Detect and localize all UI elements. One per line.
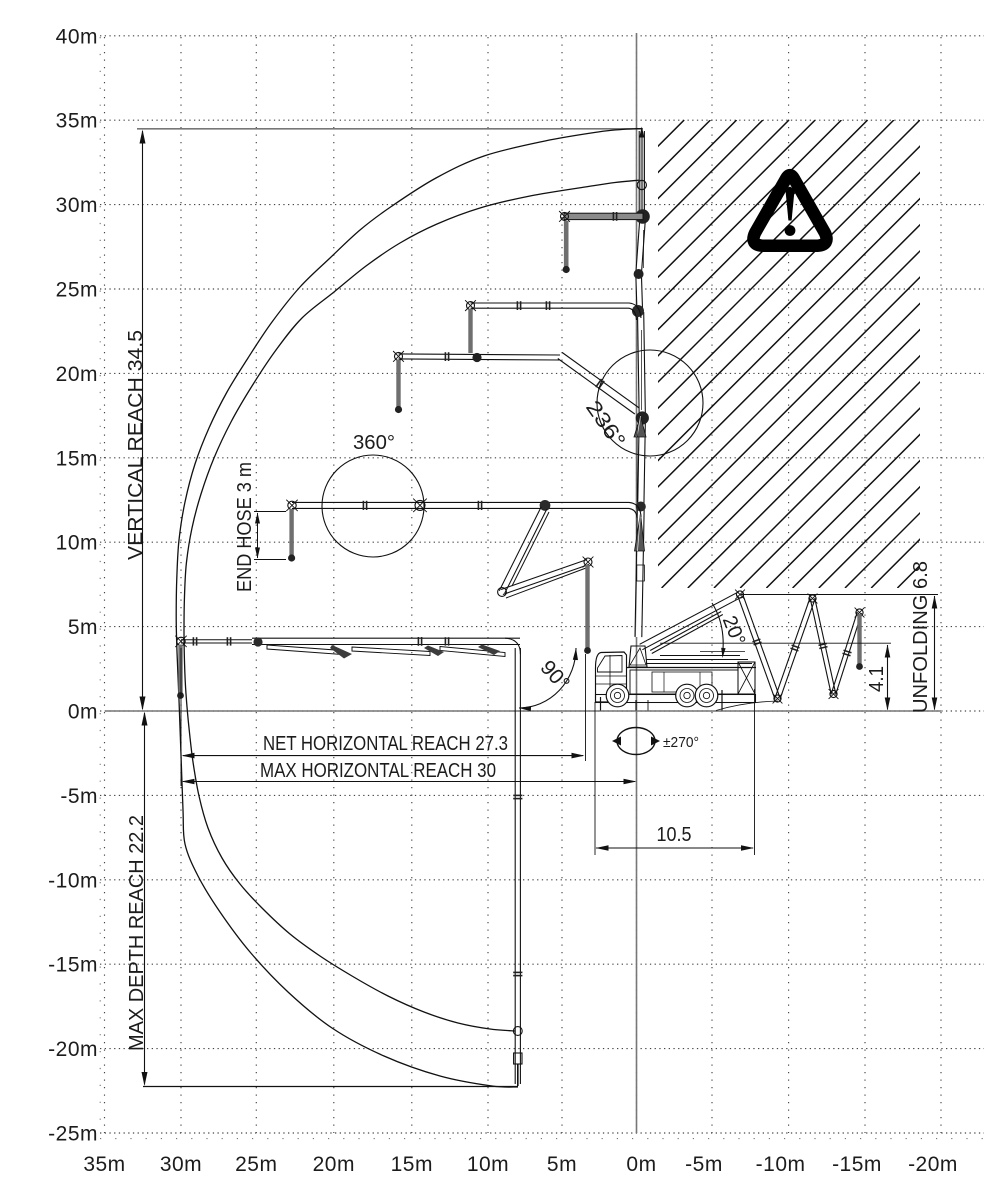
- svg-text:25m: 25m: [235, 1153, 277, 1176]
- svg-text:20m: 20m: [56, 363, 98, 386]
- svg-text:0m: 0m: [68, 701, 98, 724]
- svg-text:4.1: 4.1: [866, 666, 888, 692]
- svg-text:0m: 0m: [626, 1153, 656, 1176]
- svg-text:35m: 35m: [83, 1153, 125, 1176]
- svg-text:VERTICAL REACH 34.5: VERTICAL REACH 34.5: [125, 330, 147, 560]
- svg-text:UNFOLDING 6.8: UNFOLDING 6.8: [910, 561, 932, 713]
- svg-text:30m: 30m: [56, 194, 98, 217]
- svg-text:5m: 5m: [547, 1153, 577, 1176]
- svg-text:10.5: 10.5: [657, 824, 692, 846]
- svg-text:-15m: -15m: [48, 954, 98, 977]
- svg-text:35m: 35m: [56, 110, 98, 133]
- svg-text:±270°: ±270°: [663, 734, 699, 751]
- svg-text:-5m: -5m: [685, 1153, 723, 1176]
- svg-text:-20m: -20m: [908, 1153, 958, 1176]
- svg-text:-15m: -15m: [832, 1153, 882, 1176]
- svg-text:360°: 360°: [353, 432, 395, 454]
- svg-text:MAX DEPTH REACH 22.2: MAX DEPTH REACH 22.2: [126, 815, 148, 1051]
- svg-text:NET HORIZONTAL REACH 27.3: NET HORIZONTAL REACH 27.3: [263, 733, 508, 755]
- svg-text:10m: 10m: [467, 1153, 509, 1176]
- svg-text:5m: 5m: [68, 616, 98, 639]
- svg-text:MAX HORIZONTAL REACH 30: MAX HORIZONTAL REACH 30: [260, 760, 496, 782]
- svg-text:10m: 10m: [56, 532, 98, 555]
- svg-text:40m: 40m: [56, 25, 98, 48]
- svg-text:-10m: -10m: [48, 869, 98, 892]
- svg-text:END HOSE 3 m: END HOSE 3 m: [234, 462, 256, 592]
- svg-text:15m: 15m: [391, 1153, 433, 1176]
- svg-text:-25m: -25m: [48, 1123, 98, 1146]
- svg-text:-20m: -20m: [48, 1038, 98, 1061]
- svg-text:15m: 15m: [56, 447, 98, 470]
- svg-text:90°: 90°: [536, 656, 575, 695]
- svg-text:25m: 25m: [56, 279, 98, 302]
- svg-text:-5m: -5m: [60, 785, 98, 808]
- svg-text:20m: 20m: [313, 1153, 355, 1176]
- svg-text:30m: 30m: [160, 1153, 202, 1176]
- svg-text:-10m: -10m: [756, 1153, 806, 1176]
